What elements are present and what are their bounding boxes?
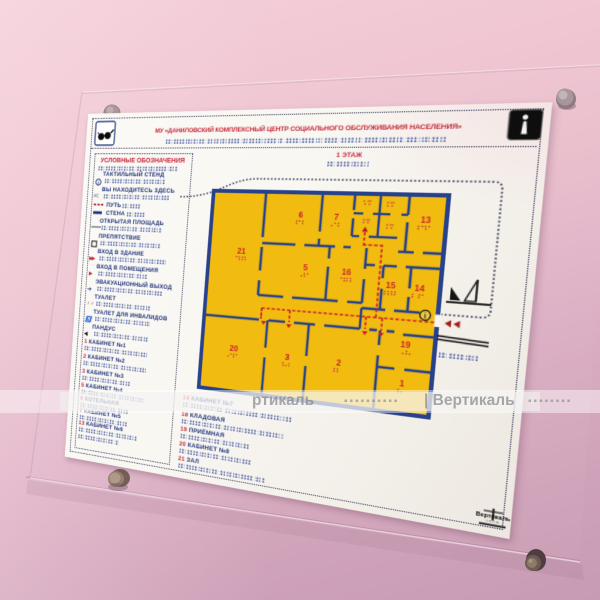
- svg-text:15: 15: [385, 282, 396, 292]
- svg-text:14: 14: [414, 285, 425, 295]
- svg-text:13: 13: [420, 216, 431, 225]
- svg-text:20: 20: [229, 345, 238, 354]
- svg-text:16: 16: [341, 268, 351, 277]
- svg-text:21: 21: [237, 248, 246, 257]
- svg-text:19: 19: [400, 341, 411, 351]
